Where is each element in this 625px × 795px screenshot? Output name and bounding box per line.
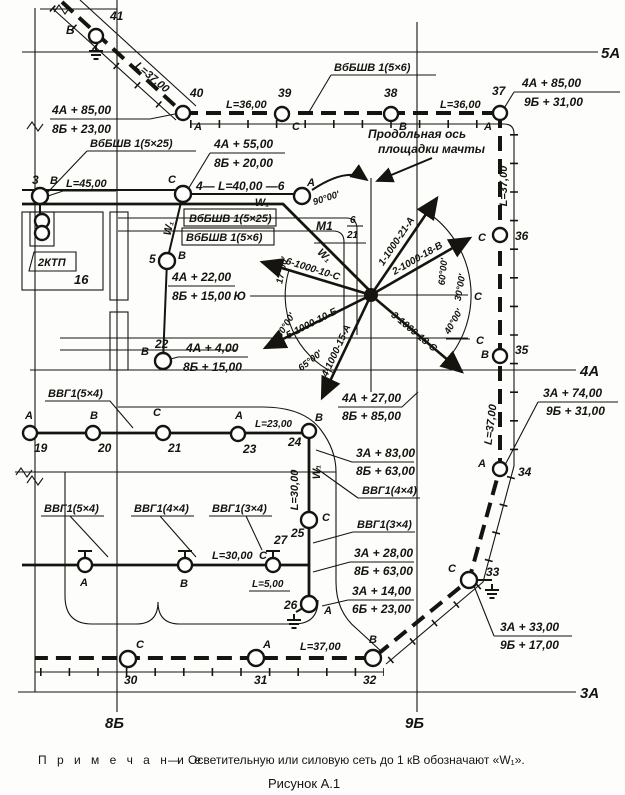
mast-mark-denominator: 21 <box>346 230 359 241</box>
axis-label-3a: 3А <box>580 685 599 702</box>
length-37-right-upper: L=37,00 <box>498 165 510 207</box>
pole-38 <box>384 107 398 121</box>
pole-25-number: 25 <box>290 526 305 540</box>
pole-39-phase: С <box>292 121 301 133</box>
pole-26-number: 26 <box>283 598 298 612</box>
fr9-bottom: 8Б + 63,00 <box>356 464 415 478</box>
axis-label-4a: 4А <box>579 363 599 380</box>
axis-label-5a: 5А <box>601 45 620 62</box>
pole-3-phase: В <box>50 175 58 187</box>
pole-5-number: 5 <box>149 252 156 266</box>
fr11-bottom: 6Б + 23,00 <box>352 602 411 616</box>
pole-32-number: 32 <box>363 673 377 687</box>
pole-26 <box>301 596 317 612</box>
pole-6-phase: А <box>306 177 315 189</box>
pole-33 <box>461 572 477 588</box>
pole-30-number: 30 <box>124 673 138 687</box>
pole-31-number: 31 <box>254 673 268 687</box>
pole-25 <box>301 512 317 528</box>
pole-37 <box>493 106 507 120</box>
pole-41-number: 41 <box>109 9 124 23</box>
note-text: Осветительную или силовую сеть до 1 кВ о… <box>188 753 525 767</box>
pole-35-number: 35 <box>515 343 529 357</box>
w1-mark-span: W₁ <box>255 197 269 209</box>
pole-31-phase: А <box>262 639 271 651</box>
length-45: L=45,00 <box>66 178 108 190</box>
mast-axis-leader-arrow <box>377 158 432 181</box>
note-dash: — <box>168 753 180 767</box>
fr8-top: 4А + 4,00 <box>185 341 239 355</box>
pole-26-phase: А <box>323 605 332 617</box>
site-plan-figure: 5А 4А 3А 8Б 9Б <box>0 0 625 795</box>
pole-41 <box>89 29 103 43</box>
pole-19-number: 19 <box>34 441 48 455</box>
ray-c-end-label: С <box>474 291 483 303</box>
fr3-bottom: 8Б + 20,00 <box>214 156 273 170</box>
pole-21-number: 21 <box>167 441 182 455</box>
pole-3 <box>32 188 48 204</box>
fr6-top: 3А + 74,00 <box>543 386 602 400</box>
pole-37-phase: А <box>483 121 492 133</box>
fr7-top: 3А + 33,00 <box>500 620 559 634</box>
pole-36-phase: С <box>478 232 487 244</box>
mast-mark-numerator: 6 <box>350 215 356 226</box>
building-16-number: 16 <box>74 272 89 287</box>
length-5: L=5,00 <box>252 579 284 590</box>
lamp-pole-27 <box>266 551 280 572</box>
ray-4-label: 4-1000-15-А <box>319 323 353 379</box>
pole-24-number: 24 <box>287 435 302 449</box>
length-36-b: L=36,00 <box>440 99 482 111</box>
fr4-bottom: 8Б + 15,00 <box>172 289 231 303</box>
length-30-bottom: L=30,00 <box>212 550 254 562</box>
lamp-pole-b <box>178 551 192 572</box>
angle-90: 90°00' <box>312 189 342 208</box>
angle-40: 40°00' <box>442 307 466 338</box>
right-side-labels: L=37,00 36 С 35 В L=37,00 34 А 33 С <box>448 165 532 598</box>
fr6-bottom: 9Б + 31,00 <box>546 404 605 418</box>
drawing-page: 5А 4А 3А 8Б 9Б <box>0 0 625 795</box>
length-37-right-lower: L=37,00 <box>483 403 500 446</box>
fr1-bottom: 8Б + 23,00 <box>52 122 111 136</box>
mast-axis-caption-line2: площадки мачты <box>378 142 486 156</box>
fr2-top: 4А + 85,00 <box>521 76 581 90</box>
fr5-top: 4А + 27,00 <box>341 391 401 405</box>
pole-33-phase: С <box>448 563 457 575</box>
pole-22-phase: В <box>141 346 149 358</box>
mast-axis-caption-line1: Продольная ось <box>368 127 466 141</box>
pole-20-number: 20 <box>97 441 112 455</box>
cable-label-vvg1-3x4-callout: ВВГ1(3×4) <box>357 519 412 531</box>
pole-23-number: 23 <box>242 442 257 456</box>
lamp-pole-a-phase: А <box>79 577 88 589</box>
fr9-top: 3А + 83,00 <box>356 446 415 460</box>
pole-32-phase: В <box>369 634 377 646</box>
length-36-a: L=36,00 <box>226 99 268 111</box>
cable-label-vvg1-5x4-bottom: ВВГ1(5×4) <box>44 503 99 515</box>
pole-19 <box>23 426 37 440</box>
pole-6 <box>294 188 310 204</box>
pole-27-number: 27 <box>273 533 289 547</box>
fr7-bottom: 9Б + 17,00 <box>500 638 559 652</box>
pole-24-phase: В <box>315 412 323 424</box>
ray-6-label: 6-1000-10-С <box>284 256 342 283</box>
pole-4-phase: С <box>168 174 177 186</box>
ray-3-label: 3-1000-18-С <box>389 310 440 355</box>
boxed-cable-label-1: ВбБШВ 1(5×25) <box>189 213 272 225</box>
line-c-end-label: С <box>476 335 485 347</box>
pole-41-phase: В <box>66 23 75 37</box>
span-4-to-6: 4— L=40,00 —6 <box>195 179 285 193</box>
lamp-pole-b-phase: В <box>180 578 188 590</box>
fr11-top: 3А + 14,00 <box>352 584 411 598</box>
pole-40-phase: А <box>193 121 202 133</box>
figure-caption: Рисунок А.1 <box>268 776 340 791</box>
substation-label-2ktp: 2КТП <box>37 257 67 269</box>
fr8-bottom: 8Б + 15,00 <box>183 360 242 374</box>
ground-symbol-41 <box>89 45 103 59</box>
boxed-cable-label-2: ВбБШВ 1(5×6) <box>186 232 263 244</box>
pole-23-phase: А <box>234 410 243 422</box>
pole-32 <box>365 650 381 666</box>
pole-40-number: 40 <box>189 86 204 100</box>
pole-23 <box>231 427 245 441</box>
ground-symbol-33 <box>485 584 499 598</box>
pole-34-phase: А <box>477 458 486 470</box>
pole-35 <box>493 349 507 363</box>
pole-21 <box>156 426 170 440</box>
pole-5 <box>159 253 175 269</box>
axis-label-9b: 9Б <box>405 715 424 732</box>
length-30-vertical: L=30,00 <box>289 469 301 511</box>
pole-22 <box>155 353 171 369</box>
footer: П р и м е ч а н и е — Осветительную или … <box>38 753 525 791</box>
fr1-top: 4А + 85,00 <box>51 103 111 117</box>
pole-39 <box>275 107 289 121</box>
arc-90-degrees <box>312 175 367 190</box>
pole-row-19-24: ВВГ1(5×4) А 19 В 20 С 21 А 23 В 24 L=23,… <box>24 388 323 456</box>
pole-19-phase: А <box>24 410 33 422</box>
pole-31 <box>248 650 264 666</box>
pole-24 <box>302 424 316 438</box>
angle-60: 60°00' <box>437 257 451 286</box>
pole-30-phase: С <box>136 639 145 651</box>
cable-label-vbbshv-5x6-top: ВбБШВ 1(5×6) <box>334 62 411 74</box>
cable-label-vvg1-3x4-bottom: ВВГ1(3×4) <box>212 503 267 515</box>
pole-22-number: 22 <box>154 337 169 351</box>
pole-30 <box>120 651 136 667</box>
cable-label-vvg1-4x4-bottom: ВВГ1(4×4) <box>134 503 189 515</box>
pole-40 <box>176 106 190 120</box>
pole-36-number: 36 <box>515 229 529 243</box>
cable-label-vvg1-5x4-row: ВВГ1(5×4) <box>48 388 103 400</box>
axis-label-8b: 8Б <box>105 715 124 732</box>
fr4-top: 4А + 22,00 <box>171 270 231 284</box>
pole-37-number: 37 <box>492 84 507 98</box>
pole-25-phase: С <box>322 512 331 524</box>
pole-20 <box>86 426 100 440</box>
w1-mark-feeder: W₁ <box>315 247 334 266</box>
pole-5-phase: В <box>178 250 186 262</box>
pole-36 <box>493 228 507 242</box>
pole-39-number: 39 <box>278 86 292 100</box>
length-37-bottom: L=37,00 <box>300 641 342 653</box>
ground-symbol-26 <box>287 614 301 628</box>
pole-21-phase: С <box>153 407 162 419</box>
pole-34-number: 34 <box>518 465 532 479</box>
mast-mark-m1: М1 <box>316 219 333 233</box>
south-marker: Ю <box>233 289 246 303</box>
pole-34 <box>493 462 507 476</box>
length-23: L=23,00 <box>255 419 292 430</box>
pole-38-phase: В <box>399 121 407 133</box>
pole-35-phase: В <box>481 349 489 361</box>
fr10-top: 3А + 28,00 <box>354 546 413 560</box>
fr5-bottom: 8Б + 85,00 <box>342 409 401 423</box>
cable-label-vbbshv-5x25: ВбБШВ 1(5×25) <box>90 138 173 150</box>
angle-30-right: 30°00' <box>453 272 469 301</box>
pole-4 <box>175 186 191 202</box>
lamp-pole-a <box>78 551 92 572</box>
cable-label-vvg1-4x4-callout: ВВГ1(4×4) <box>362 485 417 497</box>
pole-20-phase: В <box>90 410 98 422</box>
pole-3-number: 3 <box>32 173 39 187</box>
fr10-bottom: 8Б + 63,00 <box>354 564 413 578</box>
fr3-top: 4А + 55,00 <box>213 137 273 151</box>
fr2-bottom: 9Б + 31,00 <box>524 95 583 109</box>
pole-33-number: 33 <box>486 565 500 579</box>
pole-38-number: 38 <box>384 86 398 100</box>
